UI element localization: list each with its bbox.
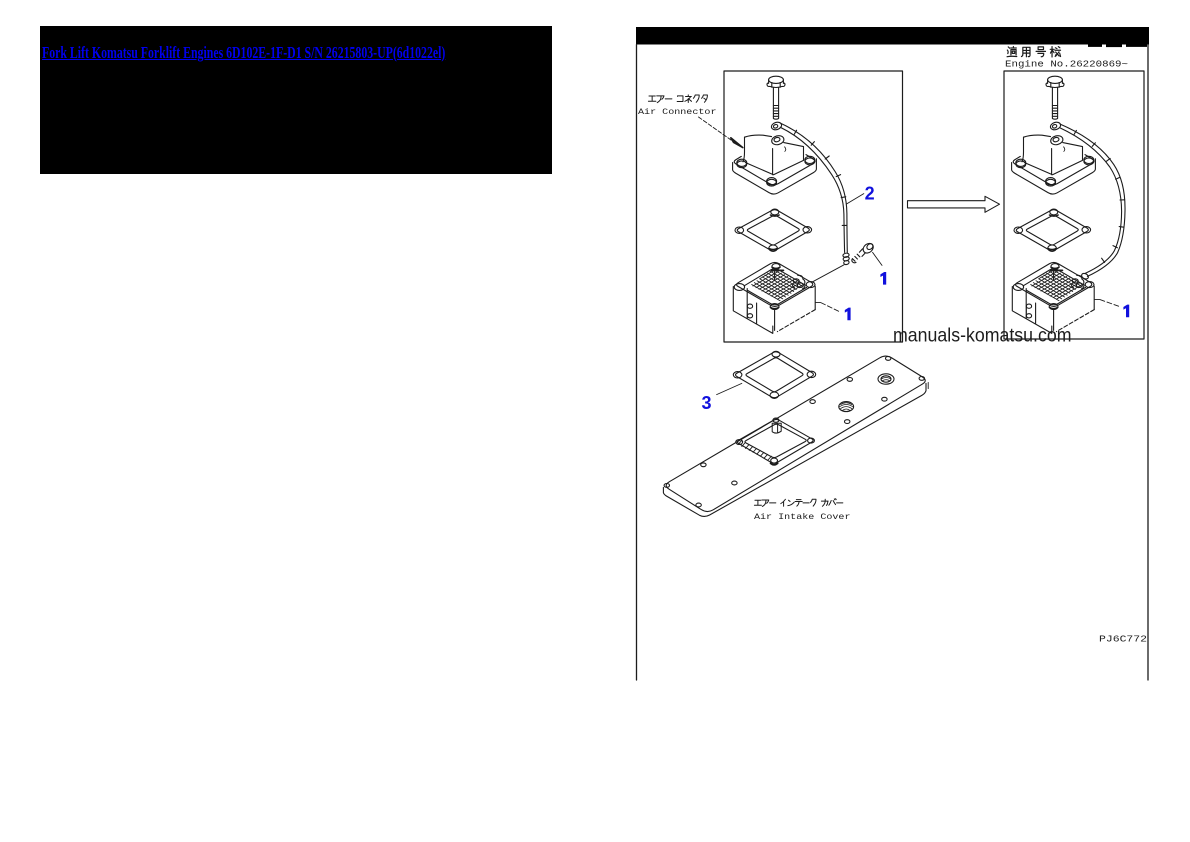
svg-text:Engine No.26220869~: Engine No.26220869~ — [1005, 59, 1128, 70]
svg-text:3: 3 — [702, 393, 712, 413]
svg-text:Air Intake Cover: Air Intake Cover — [754, 512, 851, 522]
svg-text:PJ6C772: PJ6C772 — [1099, 635, 1147, 645]
svg-text:manuals-komatsu.com: manuals-komatsu.com — [893, 325, 1072, 347]
svg-text:Air Connector: Air Connector — [638, 107, 717, 117]
svg-text:2: 2 — [865, 184, 875, 204]
